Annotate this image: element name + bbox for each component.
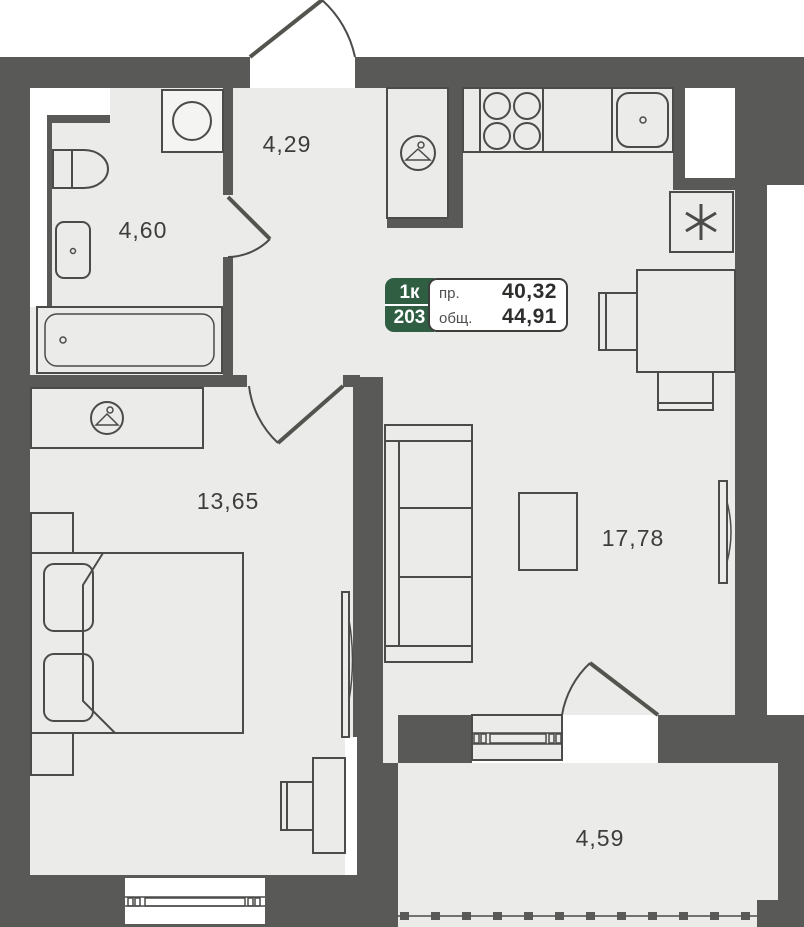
- floor-plan-drawing: 4,60 4,29 13,65 17,78 4,59: [0, 0, 804, 927]
- bathtub: [37, 307, 222, 373]
- unit-type: 1к: [399, 281, 419, 304]
- unit-info-card: 1к 203 пр. 40,32 общ. 44,91: [385, 278, 568, 332]
- hallway-closet: [387, 88, 448, 218]
- room-label-hallway: 4,29: [263, 131, 312, 157]
- living-area-label: пр.: [439, 283, 460, 305]
- chair-bottom: [658, 372, 713, 403]
- dining-table: [637, 270, 735, 372]
- pillow: [44, 654, 93, 721]
- kitchen-counter: [463, 88, 673, 152]
- kitchen-duct: [685, 88, 735, 178]
- toilet-bowl: [72, 150, 108, 188]
- nightstand-bottom: [31, 733, 73, 775]
- entry-door: [250, 0, 355, 57]
- bedroom-window: [125, 878, 265, 924]
- pillow: [44, 564, 93, 631]
- balcony-window: [472, 715, 562, 760]
- chair-backrest: [599, 293, 606, 350]
- plumbing-shaft: [30, 88, 47, 307]
- chair-left: [606, 293, 637, 350]
- desk-chair: [287, 782, 313, 830]
- unit-areas-block: пр. 40,32 общ. 44,91: [428, 278, 568, 332]
- tv-living: [719, 481, 727, 583]
- living-area-value: 40,32: [502, 281, 557, 303]
- toilet-tank: [53, 150, 72, 188]
- washing-machine: [162, 90, 223, 152]
- bedroom-wardrobe: [31, 388, 203, 448]
- shaft-divider: [47, 117, 52, 307]
- bedroom-shaft: [345, 737, 357, 875]
- room-label-balcony: 4,59: [576, 825, 625, 851]
- total-area-value: 44,91: [502, 306, 557, 328]
- room-label-living: 17,78: [602, 525, 665, 551]
- room-label-bedroom: 13,65: [197, 488, 260, 514]
- total-area-label: общ.: [439, 308, 472, 330]
- tv-bedroom: [342, 592, 349, 737]
- chair-backrest: [658, 403, 713, 410]
- coffee-table: [519, 493, 577, 570]
- bathroom-sink: [56, 222, 90, 278]
- room-label-bathroom: 4,60: [119, 217, 168, 243]
- unit-number: 203: [385, 304, 434, 329]
- nightstand-top: [31, 513, 73, 555]
- floor-plan: 4,60 4,29 13,65 17,78 4,59 1к 203 пр. 40…: [0, 0, 804, 927]
- desk: [313, 758, 345, 853]
- unit-type-block: 1к 203: [385, 278, 434, 332]
